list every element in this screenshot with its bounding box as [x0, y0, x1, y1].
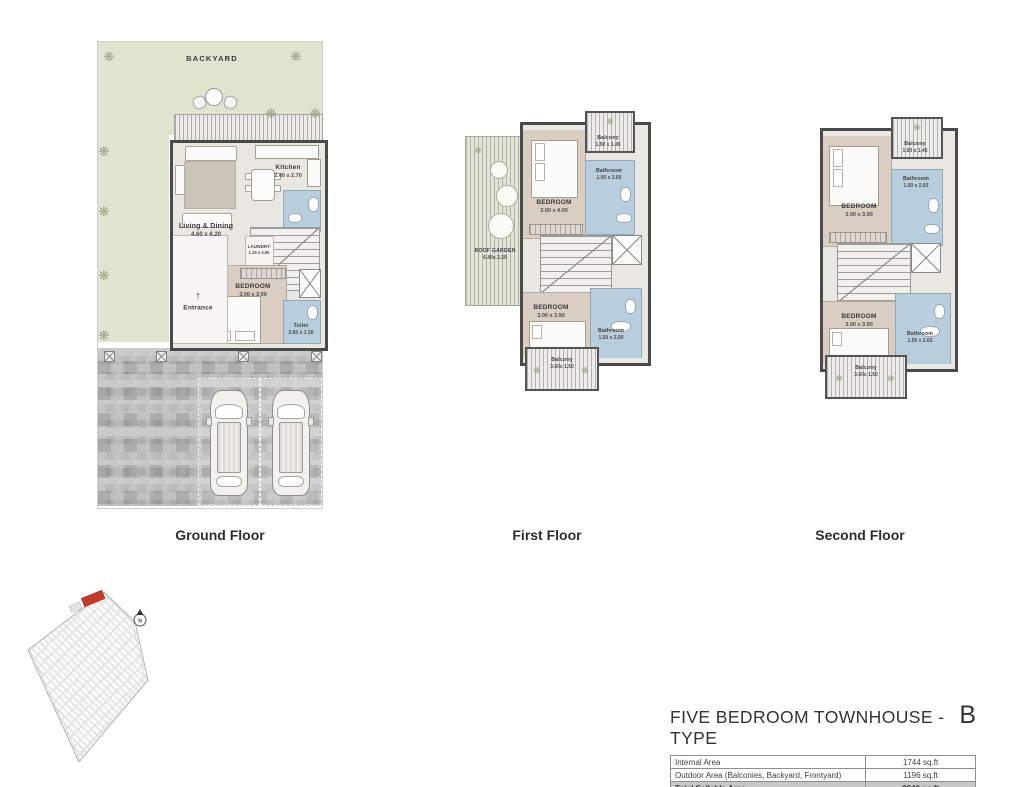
room-name: Balcony [854, 365, 878, 372]
tree-icon: ❋ [266, 106, 277, 122]
bathroom-room [283, 190, 321, 232]
sink-icon [616, 213, 632, 223]
tree-icon: ❋ [606, 117, 614, 128]
pillow-icon [833, 149, 843, 167]
room-name: Kitchen [274, 164, 302, 173]
toilet-label: Toilet 2.60 x 1.50 [288, 323, 313, 337]
bathroom-top-label: Bathroom 1.50 x 2.60 [596, 168, 622, 182]
room-dim: 3.00 x 4.00 [536, 208, 571, 215]
pillow-icon [833, 169, 843, 187]
balcony-bottom-label: Balcony 3.60x 1.50 [854, 365, 878, 379]
row-value: 2940 sq.ft [866, 782, 976, 787]
bedroom-bottom-label: BEDROOM 3.00 x 3.90 [533, 304, 568, 320]
row-value: 1744 sq.ft [866, 756, 976, 769]
bedroom-label: BEDROOM 3.00 x 3.90 [235, 283, 270, 299]
wardrobe-icon [829, 232, 887, 243]
tree-icon: ❋ [99, 328, 110, 344]
car-windshield [277, 404, 305, 419]
summary-panel: FIVE BEDROOM TOWNHOUSE - TYPE B Internal… [670, 701, 976, 787]
wardrobe-icon [529, 224, 583, 235]
tree-icon: ❋ [291, 49, 302, 65]
toilet-room [283, 300, 321, 344]
room-name: BEDROOM [841, 203, 876, 212]
room-name: Living & Dining [179, 222, 233, 231]
room-name: Bathroom [903, 176, 929, 183]
living-dining-label: Living & Dining 4.60 x 6.20 [179, 222, 233, 240]
row-value: 1196 sq.ft [866, 769, 976, 782]
rug-icon [184, 161, 236, 209]
tree-icon: ❋ [533, 366, 541, 377]
sink-icon [288, 213, 302, 223]
car-roof [217, 422, 241, 473]
ground-house-block: Kitchen 2.40 x 2.70 Living & Dining 4.60… [170, 140, 328, 351]
backyard-label: BACKYARD [186, 54, 238, 64]
room-name: BEDROOM [235, 283, 270, 292]
tree-icon: ❋ [310, 106, 321, 122]
bedroom-top-room [823, 136, 892, 247]
toilet-icon [307, 305, 318, 320]
pillow-icon [532, 325, 542, 339]
bathroom-bottom-label: Bathroom 1.50 x 2.65 [907, 331, 933, 345]
floor-title-first: First Floor [457, 527, 637, 543]
tree-icon: ❋ [835, 374, 843, 385]
pillow-icon [535, 163, 545, 181]
toilet-icon [625, 299, 636, 314]
room-dim: 3.00 x 3.90 [235, 292, 270, 299]
pillow-icon [235, 331, 255, 341]
planter-icon [104, 351, 115, 362]
room-dim: 1.15 x 0.95 [248, 250, 271, 256]
north-label: N [138, 619, 142, 625]
bathroom-bottom-label: Bathroom 1.50 x 2.60 [598, 328, 624, 342]
car-icon [210, 390, 248, 496]
room-name: Bathroom [596, 168, 622, 175]
car-icon [272, 390, 310, 496]
room-dim: 6.40x 2.20 [474, 255, 515, 262]
room-name: Toilet [288, 323, 313, 330]
toilet-icon [928, 198, 939, 213]
second-floor-block: ❋ Balcony 1.60 x 1.45 BEDROOM 3.00 x 3.9… [820, 128, 958, 372]
tree-icon: ❋ [887, 374, 895, 385]
room-dim: 1.60 x 1.45 [902, 148, 927, 155]
car-rear-window [278, 476, 304, 487]
table-row-outdoor: Outdoor Area (Balconies, Backyard, Front… [671, 769, 976, 782]
balcony-top-label: Balcony 1.50 x 1.45 [595, 135, 620, 149]
table-row-total: Total Sellable Area 2940 sq.ft [671, 782, 976, 787]
shaft-void [299, 269, 321, 298]
bedroom-top-room [523, 130, 586, 239]
tree-icon: ❋ [99, 144, 110, 160]
room-dim: 1.50 x 1.45 [595, 142, 620, 149]
row-label: Outdoor Area (Balconies, Backyard, Front… [671, 769, 866, 782]
terrace-deck [174, 114, 323, 142]
room-dim: 2.60 x 1.50 [288, 330, 313, 337]
balcony-bottom: ❋ ❋ Balcony 3.60x 1.50 [525, 347, 599, 391]
roof-garden-area: ❋ ROOF GARDEN 6.40x 2.20 [465, 136, 524, 306]
room-name: BEDROOM [536, 199, 571, 208]
tree-icon: ❋ [104, 49, 115, 65]
room-dim: 3.00 x 3.90 [533, 313, 568, 320]
room-name: BEDROOM [533, 304, 568, 313]
tree-icon: ❋ [474, 146, 482, 157]
area-table: Internal Area 1744 sq.ft Outdoor Area (B… [670, 755, 976, 787]
roof-garden-label: ROOF GARDEN 6.40x 2.20 [474, 248, 515, 262]
balcony-bottom-label: Balcony 3.60x 1.50 [550, 357, 574, 371]
first-floor-block: ❋ Balcony 1.50 x 1.45 BEDROOM 3.00 x 4.0… [520, 122, 651, 366]
kitchen-appliance-icon [307, 159, 321, 187]
room-name: Bathroom [907, 331, 933, 338]
site-plan-map: N [22, 582, 178, 770]
tree-icon: ❋ [581, 366, 589, 377]
room-name: ROOF GARDEN [474, 248, 515, 255]
wardrobe-icon [240, 268, 286, 279]
toilet-icon [308, 197, 319, 212]
tree-icon: ❋ [99, 204, 110, 220]
dining-chair-icon [245, 173, 252, 180]
driveway-area [98, 348, 322, 506]
car-rear-window [216, 476, 242, 487]
row-label: Total Sellable Area [671, 782, 866, 787]
room-dim: 3.60x 1.50 [854, 372, 878, 379]
room-name: Balcony [595, 135, 620, 142]
room-dim: 1.50 x 2.60 [596, 175, 622, 182]
shaft-void [911, 243, 941, 273]
bathroom-top-label: Bathroom 1.50 x 2.65 [903, 176, 929, 190]
summary-title-text: FIVE BEDROOM TOWNHOUSE - TYPE [670, 707, 949, 749]
balcony-bottom: ❋ ❋ Balcony 3.60x 1.50 [825, 355, 907, 399]
pillow-icon [535, 143, 545, 161]
laundry-label: LAUNDRY 1.15 x 0.95 [248, 244, 271, 256]
entrance-arrow: ↑ [195, 284, 201, 306]
room-name: Entrance [183, 305, 212, 314]
room-dim: 1.50 x 2.65 [907, 338, 933, 345]
kitchen-counter-icon [255, 145, 319, 159]
bedroom-top-label: BEDROOM 3.00 x 4.00 [536, 199, 571, 215]
balcony-top-label: Balcony 1.60 x 1.45 [902, 141, 927, 155]
ground-floor-plan: BACKYARD ❋ ❋ ❋ ❋ ❋ ❋ ❋ ❋ Kitchen 2.40 x … [95, 40, 325, 510]
bush-icon [488, 213, 514, 239]
kitchen-label: Kitchen 2.40 x 2.70 [274, 164, 302, 180]
staircase [540, 235, 612, 294]
car-roof [279, 422, 303, 473]
bathroom-bottom-room [895, 293, 951, 364]
table-row-internal: Internal Area 1744 sq.ft [671, 756, 976, 769]
sink-icon [924, 224, 940, 234]
row-label: Internal Area [671, 756, 866, 769]
planter-icon [238, 351, 249, 362]
patio-table-icon [205, 88, 223, 106]
summary-title: FIVE BEDROOM TOWNHOUSE - TYPE B [670, 701, 976, 749]
room-name: BACKYARD [186, 54, 238, 64]
summary-type-letter: B [959, 701, 976, 730]
dining-chair-icon [274, 185, 281, 192]
room-dim: 1.50 x 2.60 [598, 335, 624, 342]
bed-icon [829, 146, 879, 206]
room-name: Bathroom [598, 328, 624, 335]
room-name: Balcony [550, 357, 574, 364]
room-name: BEDROOM [841, 313, 876, 322]
planter-icon [311, 351, 322, 362]
shaft-void [612, 235, 642, 265]
room-dim: 3.60x 1.50 [550, 364, 574, 371]
pillow-icon [832, 332, 842, 346]
toilet-icon [620, 187, 631, 202]
room-dim: 1.50 x 2.65 [903, 183, 929, 190]
room-dim: 3.00 x 3.90 [841, 212, 876, 219]
second-floor-plan: ❋ Balcony 1.60 x 1.45 BEDROOM 3.00 x 3.9… [818, 118, 958, 394]
car-windshield [215, 404, 243, 419]
community-outline [28, 592, 148, 762]
bush-icon [496, 185, 518, 207]
floor-title-ground: Ground Floor [130, 527, 310, 543]
bed-icon [531, 140, 578, 198]
bush-icon [490, 161, 508, 179]
sofa-icon [185, 146, 237, 161]
room-dim: 2.40 x 2.70 [274, 173, 302, 180]
bedroom-bottom-label: BEDROOM 3.00 x 3.90 [841, 313, 876, 329]
dining-table-icon [251, 169, 275, 201]
toilet-icon [934, 304, 945, 319]
room-dim: 4.60 x 6.20 [179, 232, 233, 240]
room-name: Balcony [902, 141, 927, 148]
bedroom-top-label: BEDROOM 3.00 x 3.90 [841, 203, 876, 219]
floor-title-second: Second Floor [770, 527, 950, 543]
dining-chair-icon [245, 185, 252, 192]
first-floor-plan: ❋ ROOF GARDEN 6.40x 2.20 ❋ Balcony 1.50 … [465, 112, 650, 392]
room-dim: 3.00 x 3.90 [841, 322, 876, 329]
entrance-label: Entrance [183, 305, 212, 314]
tree-icon: ❋ [913, 123, 921, 134]
tree-icon: ❋ [99, 268, 110, 284]
planter-icon [156, 351, 167, 362]
up-arrow-icon: ↑ [195, 290, 201, 302]
floorplan-sheet: BACKYARD ❋ ❋ ❋ ❋ ❋ ❋ ❋ ❋ Kitchen 2.40 x … [0, 0, 1024, 787]
